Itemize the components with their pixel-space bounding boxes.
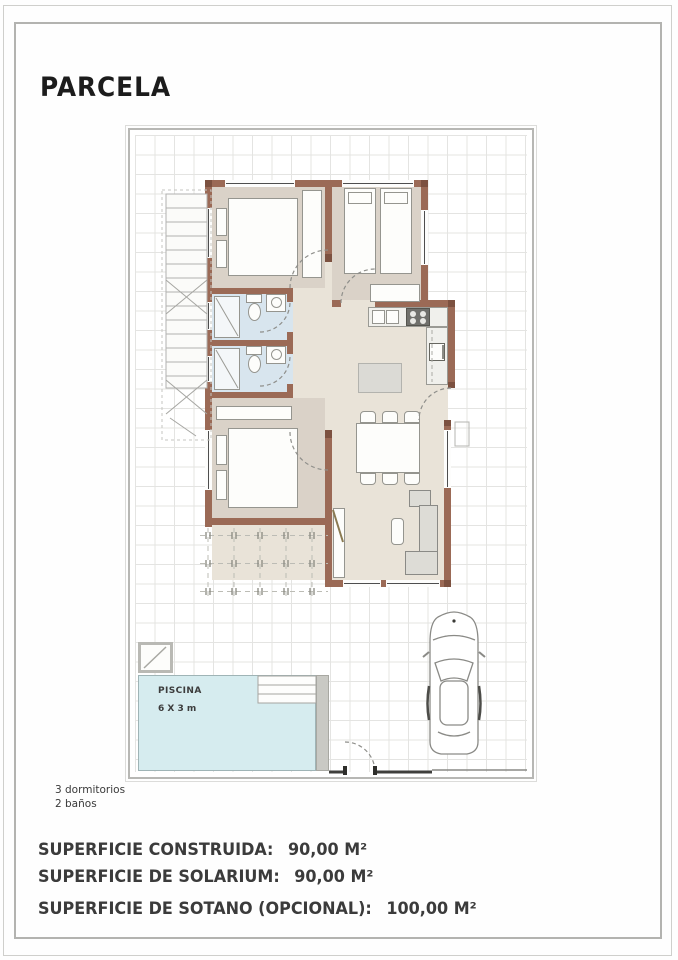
pillow xyxy=(216,208,227,236)
pool-size-label: 6 X 3 m xyxy=(158,704,196,714)
window xyxy=(205,356,212,382)
wall-cap xyxy=(444,580,451,587)
wall-cap xyxy=(325,254,332,262)
shower-tray xyxy=(214,348,240,390)
pool-step-deck xyxy=(316,675,329,771)
coffee-table xyxy=(391,518,404,545)
chair xyxy=(404,473,420,485)
window xyxy=(205,208,212,258)
note-bathrooms: 2 baños xyxy=(55,798,97,810)
surface-label: SUPERFICIE DE SOLARIUM: xyxy=(38,867,280,886)
window xyxy=(444,430,451,488)
shower-tray xyxy=(214,296,240,338)
plan-sheet: PARCELA xyxy=(0,0,678,960)
wall-segment xyxy=(325,518,332,587)
wall-segment xyxy=(448,307,455,388)
window xyxy=(343,580,381,587)
outdoor-shower xyxy=(138,642,173,673)
chair xyxy=(382,473,398,485)
pillow xyxy=(216,240,227,268)
wall-segment xyxy=(212,392,293,398)
window xyxy=(205,430,212,490)
surface-row-construida: SUPERFICIE CONSTRUIDA: 90,00 M² xyxy=(38,840,367,859)
toilet xyxy=(248,303,261,321)
wall-cap xyxy=(444,420,451,426)
burner-icon xyxy=(410,318,416,324)
sofa-chaise xyxy=(405,551,438,575)
chair xyxy=(360,411,376,423)
shelf xyxy=(216,406,292,420)
pillow xyxy=(384,192,408,204)
window xyxy=(386,580,440,587)
window xyxy=(225,180,295,187)
window xyxy=(205,302,212,330)
wall-segment xyxy=(325,180,332,262)
parcel-boundary: PISCINA 6 X 3 m xyxy=(128,128,534,779)
surface-row-sotano: SUPERFICIE DE SOTANO (OPCIONAL): 100,00 … xyxy=(38,899,477,918)
wall-cap xyxy=(448,300,455,307)
wall-segment xyxy=(287,384,293,398)
burner-icon xyxy=(410,311,416,317)
wall-segment xyxy=(332,300,341,307)
chair xyxy=(404,411,420,423)
kitchen-sink xyxy=(372,310,385,324)
burner-icon xyxy=(420,318,426,324)
surface-label: SUPERFICIE CONSTRUIDA: xyxy=(38,840,273,859)
kitchen-sink xyxy=(386,310,399,324)
note-bedrooms: 3 dormitorios xyxy=(55,784,125,796)
surface-label: SUPERFICIE DE SOTANO (OPCIONAL): xyxy=(38,899,372,918)
window xyxy=(421,210,428,265)
tv-unit xyxy=(333,508,345,578)
page-title: PARCELA xyxy=(40,72,171,103)
toilet-tank xyxy=(246,346,262,355)
pillow xyxy=(216,470,227,500)
surface-value: 90,00 M² xyxy=(294,867,373,886)
fridge xyxy=(429,343,445,361)
washbasin-bowl xyxy=(271,297,282,308)
wall-cap xyxy=(448,382,455,388)
pillow xyxy=(348,192,372,204)
rug xyxy=(358,363,402,393)
surface-value: 90,00 M² xyxy=(288,840,367,859)
wall-segment xyxy=(287,288,293,302)
surface-row-solarium: SUPERFICIE DE SOLARIUM: 90,00 M² xyxy=(38,867,373,886)
washbasin-bowl xyxy=(271,349,282,360)
wall-cap xyxy=(421,180,428,187)
toilet xyxy=(248,355,261,373)
toilet-tank xyxy=(246,294,262,303)
chair xyxy=(382,411,398,423)
wall-cap xyxy=(325,430,332,438)
wardrobe xyxy=(302,190,322,278)
pillow xyxy=(216,435,227,465)
wall-segment xyxy=(205,518,332,525)
pool-label: PISCINA xyxy=(158,686,202,696)
surface-value: 100,00 M² xyxy=(386,899,476,918)
dining-table xyxy=(356,423,420,473)
wall-segment xyxy=(287,332,293,354)
double-bed xyxy=(228,198,298,276)
dresser xyxy=(370,284,420,302)
burner-icon xyxy=(420,311,426,317)
wall-cap xyxy=(205,180,212,187)
chair xyxy=(360,473,376,485)
window xyxy=(342,180,414,187)
wall-segment xyxy=(325,430,332,518)
stove xyxy=(406,308,430,326)
double-bed xyxy=(228,428,298,508)
